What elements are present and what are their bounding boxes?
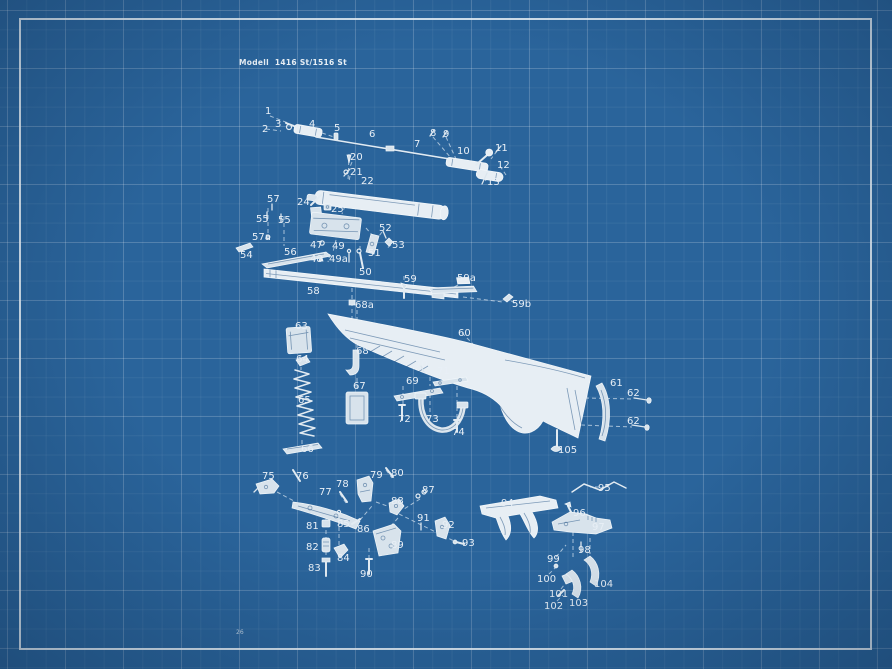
part-label-48: 48 xyxy=(310,254,323,265)
part-label-49a: 49a xyxy=(329,254,348,265)
part-label-62: 62 xyxy=(627,416,640,427)
part-label-11: 11 xyxy=(495,143,508,154)
part-label-102: 102 xyxy=(544,601,563,612)
part-label-79: 79 xyxy=(370,470,383,481)
part-label-53: 53 xyxy=(392,240,405,251)
part-label-25: 25 xyxy=(331,204,344,215)
part-81 xyxy=(322,520,330,527)
part-label-5: 5 xyxy=(334,123,340,134)
part-label-87: 87 xyxy=(422,485,435,496)
part-61-butt-plate xyxy=(596,383,610,441)
part-73-trigger-guard xyxy=(415,393,468,430)
part-label-74: 74 xyxy=(452,427,465,438)
part-label-67: 67 xyxy=(353,381,366,392)
part-103-lever xyxy=(566,570,581,598)
part-3-ring xyxy=(287,125,292,130)
part-label-104: 104 xyxy=(594,579,613,590)
part-label-86: 86 xyxy=(357,524,370,535)
part-label-66: 66 xyxy=(301,444,314,455)
part-label-52: 52 xyxy=(379,223,392,234)
part-label-59a: 59a xyxy=(457,273,476,284)
part-label-64: 64 xyxy=(296,354,309,365)
cleaning-rod-assembly xyxy=(286,123,504,184)
part-label-13: 13 xyxy=(487,177,500,188)
part-label-3: 3 xyxy=(275,119,281,130)
part-label-89: 89 xyxy=(391,540,404,551)
part-label-77: 77 xyxy=(319,487,332,498)
part-label-20: 20 xyxy=(350,152,363,163)
part-label-55: 55 xyxy=(278,215,291,226)
part-label-96: 96 xyxy=(573,508,586,519)
part-label-59: 59 xyxy=(404,274,417,285)
part-label-63: 63 xyxy=(295,321,308,332)
part-label-76: 76 xyxy=(296,471,309,482)
part-label-65: 65 xyxy=(298,395,311,406)
part-label-97: 97 xyxy=(592,522,605,533)
part-label-85: 85 xyxy=(337,519,350,530)
part-label-60: 60 xyxy=(458,328,471,339)
page-number: 26 xyxy=(236,629,244,636)
part-label-80: 80 xyxy=(391,468,404,479)
part-4-cylinder xyxy=(293,124,322,138)
part-label-2: 2 xyxy=(262,124,268,135)
part-label-88: 88 xyxy=(391,496,404,507)
part-label-4: 4 xyxy=(309,119,315,130)
part-78-pin xyxy=(340,492,347,502)
part-label-70: 70 xyxy=(415,359,428,370)
stock-assembly xyxy=(328,314,651,452)
part-label-100: 100 xyxy=(537,574,556,585)
part-label-101: 101 xyxy=(549,589,568,600)
safety-assembly xyxy=(552,482,626,598)
part-label-94: 94 xyxy=(501,498,514,509)
part-5 xyxy=(334,133,338,140)
part-label-24: 24 xyxy=(297,197,310,208)
part-50-pin xyxy=(357,249,363,268)
part-label-61: 61 xyxy=(610,378,623,389)
part-label-105: 105 xyxy=(558,445,577,456)
exploded-parts-diagram: 12345678910111213202122242547484949a5051… xyxy=(0,0,892,669)
part-label-73: 73 xyxy=(426,414,439,425)
part-label-8: 8 xyxy=(430,128,436,139)
part-label-54: 54 xyxy=(240,250,253,261)
part-label-81: 81 xyxy=(306,521,319,532)
part-label-91: 91 xyxy=(417,513,430,524)
part-94-trigger-unit xyxy=(480,496,558,540)
part-label-57: 57 xyxy=(267,194,280,205)
part-label-9: 9 xyxy=(443,129,449,140)
part-67-housing xyxy=(346,392,368,424)
part-label-50: 50 xyxy=(359,267,372,278)
part-label-75: 75 xyxy=(262,471,275,482)
part-label-49: 49 xyxy=(332,241,345,252)
part-label-6: 6 xyxy=(369,129,375,140)
part-label-68: 68 xyxy=(356,346,369,357)
part-label-72: 72 xyxy=(398,414,411,425)
part-label-84: 84 xyxy=(337,553,350,564)
part-82-cylinder xyxy=(322,538,330,552)
part-label-103: 103 xyxy=(569,598,588,609)
part-label-95: 95 xyxy=(598,483,611,494)
part-label-55: 55 xyxy=(256,214,269,225)
part-label-58: 58 xyxy=(307,286,320,297)
rod-collar xyxy=(386,146,394,151)
part-49a-pin xyxy=(347,249,350,262)
part-label-68a: 68a xyxy=(355,300,374,311)
part-label-98: 98 xyxy=(578,545,591,556)
part-label-12: 12 xyxy=(497,160,510,171)
part-label-62: 62 xyxy=(627,388,640,399)
part-label-59b: 59b xyxy=(512,299,531,310)
part-label-99: 99 xyxy=(547,554,560,565)
part-label-56: 56 xyxy=(284,247,297,258)
part-label-47: 47 xyxy=(310,240,323,251)
part-label-82: 82 xyxy=(306,542,319,553)
part-label-92: 92 xyxy=(442,520,455,531)
part-label-22: 22 xyxy=(361,176,374,187)
part-label-93: 93 xyxy=(462,538,475,549)
part-83-screw xyxy=(322,558,330,576)
part-label-10: 10 xyxy=(457,146,470,157)
blueprint-page: Modell 1416 St/1516 St xyxy=(0,0,892,669)
part-25 xyxy=(324,204,331,210)
part-label-57a: 57a xyxy=(252,232,271,243)
part-label-71: 71 xyxy=(437,366,450,377)
part-label-51: 51 xyxy=(368,248,381,259)
part-label-83: 83 xyxy=(308,563,321,574)
part-label-1: 1 xyxy=(265,106,271,117)
part-label-7: 7 xyxy=(414,139,420,150)
part-label-78: 78 xyxy=(336,479,349,490)
part-label-69: 69 xyxy=(406,376,419,387)
part-label-90: 90 xyxy=(360,569,373,580)
